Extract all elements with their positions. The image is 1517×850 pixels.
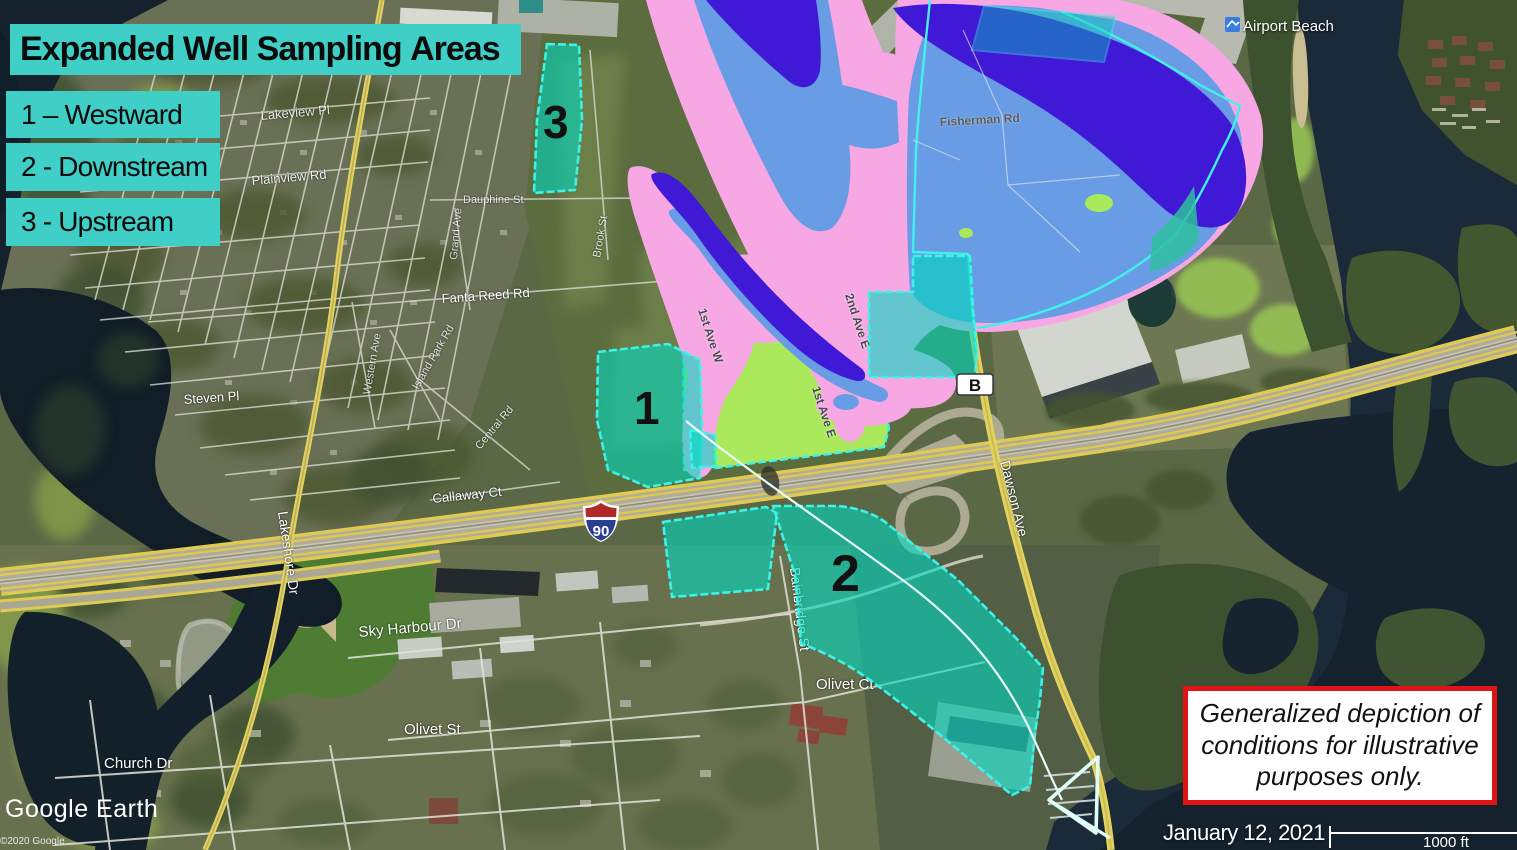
svg-text:3: 3 — [543, 96, 569, 148]
svg-text:90: 90 — [593, 523, 610, 540]
svg-text:Airport Beach: Airport Beach — [1243, 18, 1334, 35]
svg-text:Dauphine St: Dauphine St — [463, 194, 524, 206]
svg-text:2: 2 — [831, 545, 860, 603]
svg-text:Church Dr: Church Dr — [104, 755, 172, 772]
svg-text:B: B — [969, 376, 981, 395]
svg-text:Olivet Ct: Olivet Ct — [816, 676, 874, 693]
svg-text:1: 1 — [634, 382, 660, 434]
svg-text:Olivet St: Olivet St — [404, 721, 462, 738]
